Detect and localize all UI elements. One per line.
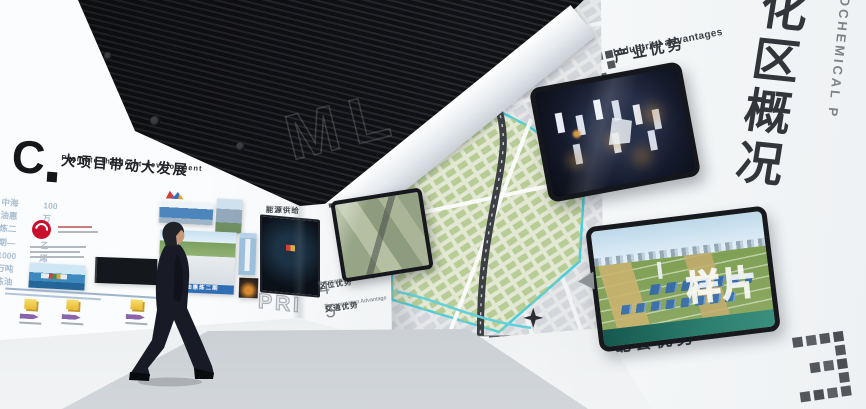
pixel-digit-3-icon — [792, 337, 803, 348]
partner-logo-icon — [166, 191, 184, 200]
wall-title-vertical-cn: 化区概况 — [719, 0, 810, 234]
screen-aerial-content — [335, 192, 430, 278]
photo-night-scene — [239, 278, 259, 299]
pixel-letters: PRI — [258, 290, 303, 319]
text-bar — [61, 322, 83, 325]
supply-display-screen — [260, 214, 320, 297]
exhibit-logo: C — [10, 133, 46, 181]
text-bar — [30, 251, 80, 253]
caption-bar — [58, 231, 98, 233]
sample-watermark: 样片 — [684, 254, 761, 310]
arrow-right-icon — [20, 313, 39, 319]
timeline-milestone — [19, 299, 51, 327]
arrow-left-icon — [577, 271, 594, 290]
service-advantage-screen — [330, 187, 434, 282]
text-bar — [30, 246, 86, 248]
screen-glare — [535, 67, 696, 197]
supply-title-en: energy supply — [266, 204, 294, 210]
milestone-box-icon — [24, 299, 37, 310]
downlight-icon — [150, 116, 160, 126]
downlight-icon — [104, 52, 112, 60]
exhibition-hall-render: 化区概况 OCHEMICAL P 产业优势 Industrial advanta… — [0, 0, 866, 409]
text-bar — [30, 256, 84, 258]
photo-tanker-ship — [28, 263, 85, 291]
cnooc-logo-icon — [32, 220, 51, 239]
wall-title-vertical-en: OCHEMICAL P — [809, 0, 853, 275]
exhibit-logo-dot — [47, 172, 58, 183]
person-walking — [124, 218, 218, 388]
arrow-right-icon — [62, 314, 81, 320]
milestone-box-icon — [66, 299, 79, 310]
timeline-milestone — [61, 299, 93, 327]
text-bar — [19, 321, 41, 324]
photo-cityscape — [215, 198, 243, 233]
caption-bar — [58, 226, 92, 228]
downlight-icon — [236, 142, 245, 151]
photo-tower — [238, 233, 256, 276]
